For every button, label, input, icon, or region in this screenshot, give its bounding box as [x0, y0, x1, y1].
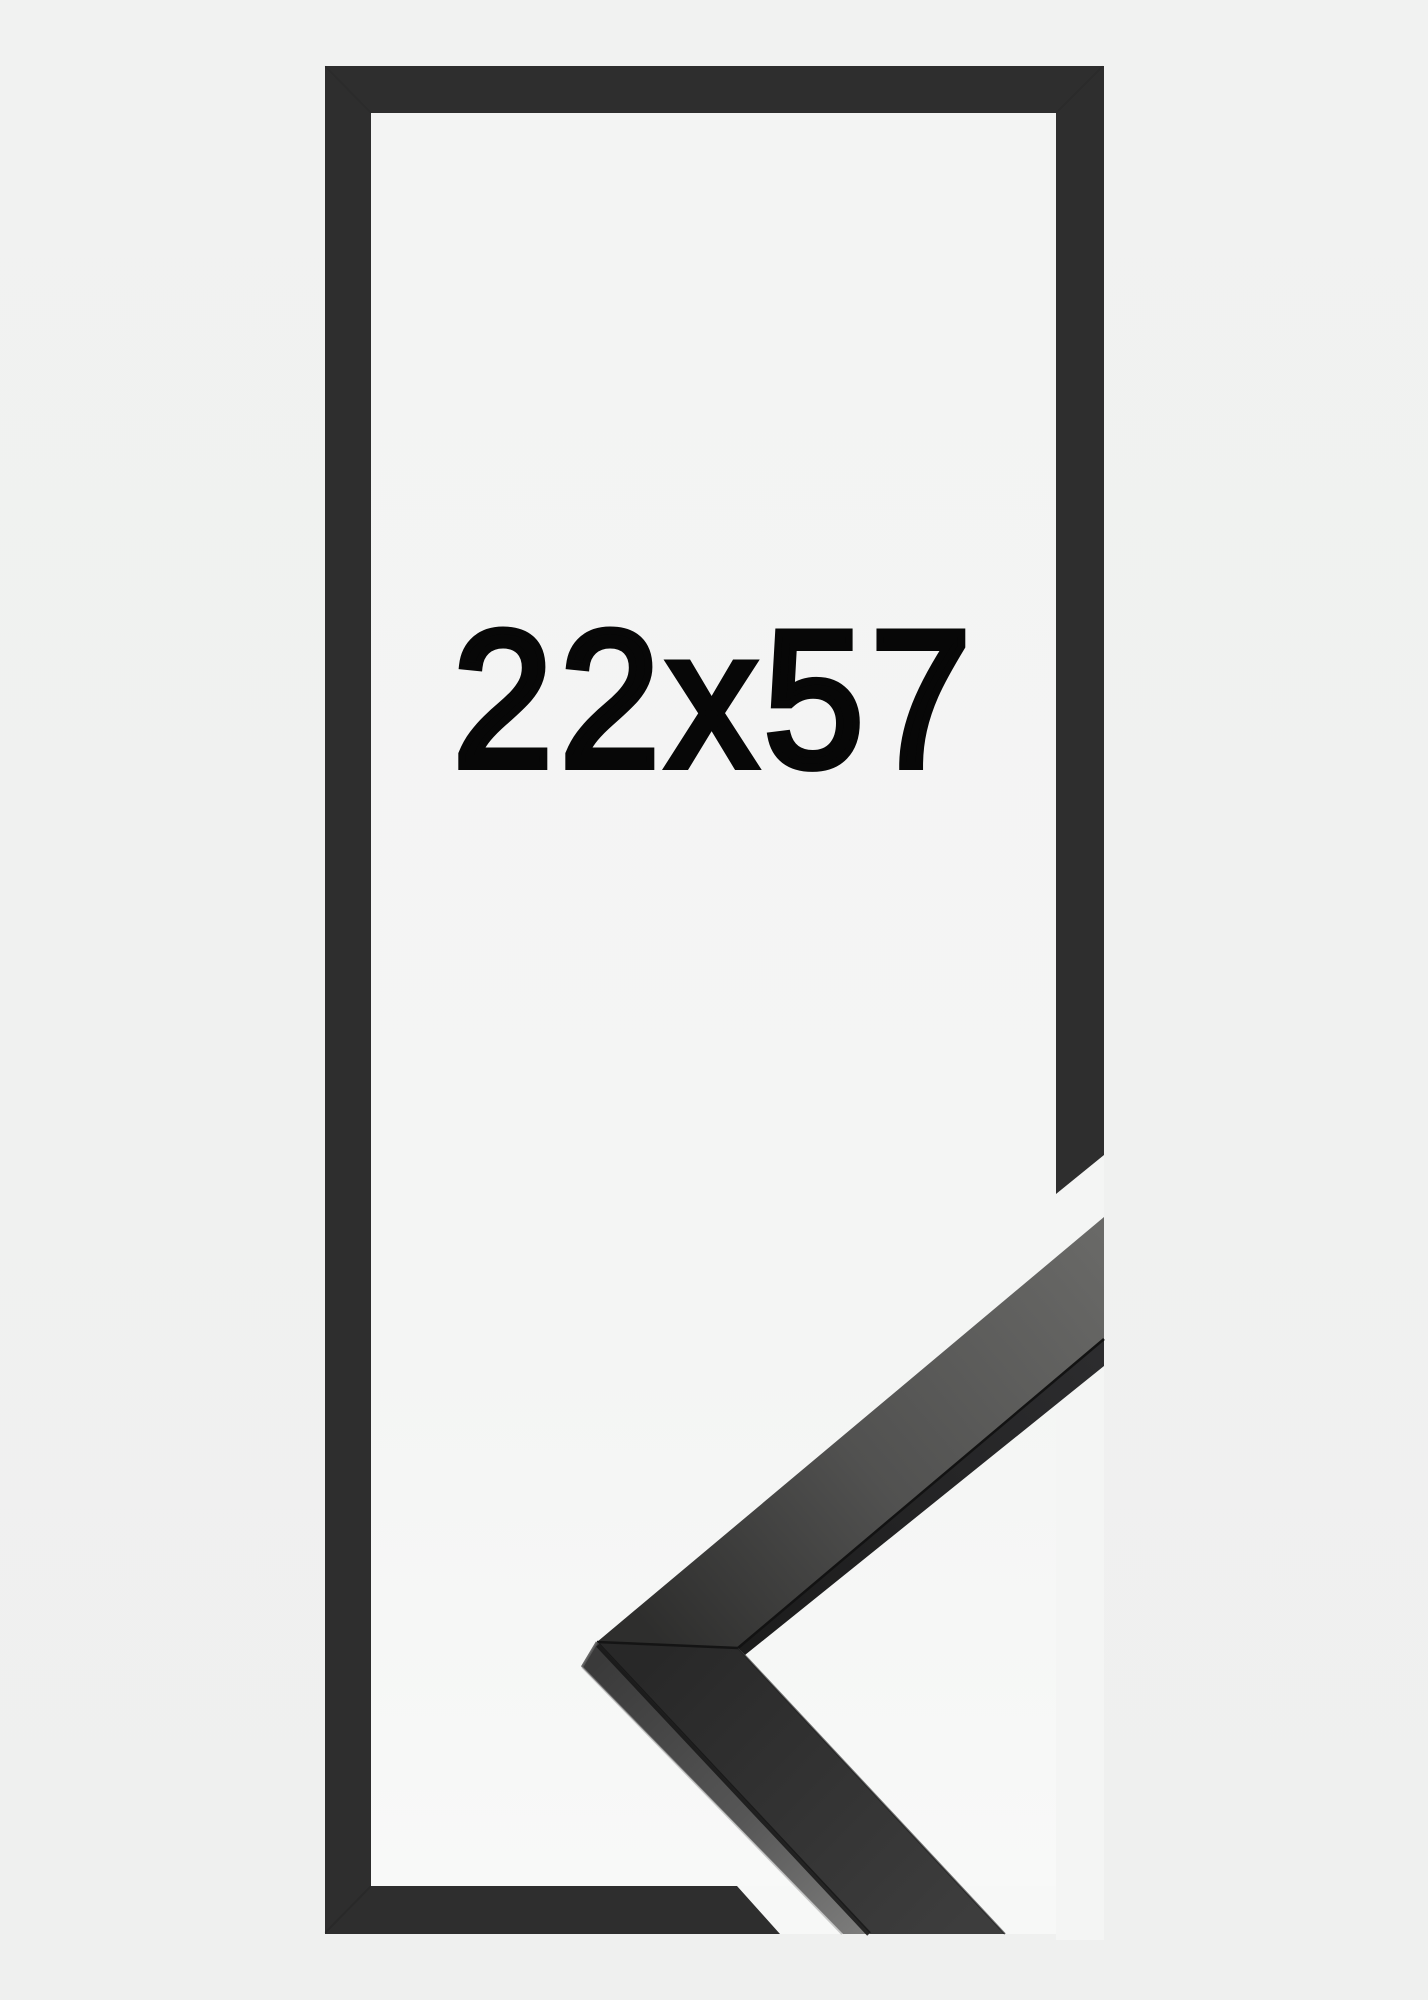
svg-text:22x57: 22x57 — [453, 591, 978, 808]
